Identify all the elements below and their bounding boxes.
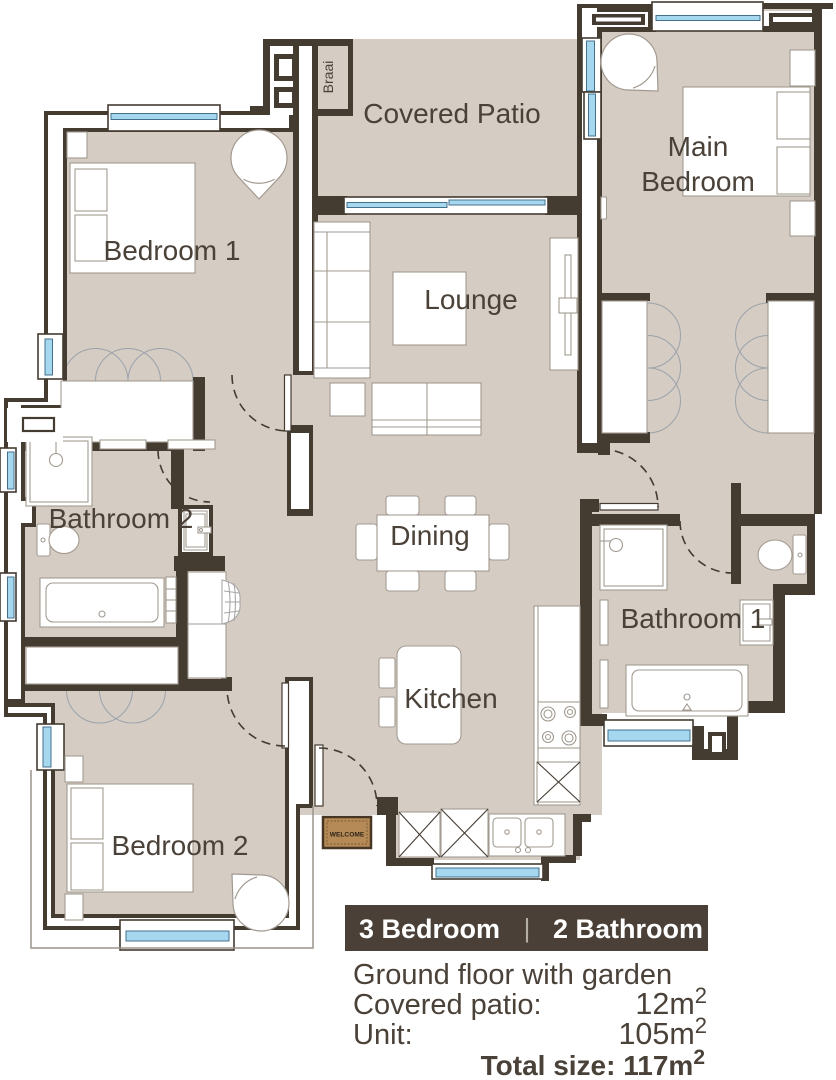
svg-text:Bedroom 2: Bedroom 2: [112, 830, 249, 861]
svg-text:Lounge: Lounge: [424, 284, 517, 315]
svg-text:3 Bedroom: 3 Bedroom: [359, 914, 500, 944]
svg-text:Unit:: Unit:: [353, 1019, 413, 1051]
svg-text:Bedroom: Bedroom: [641, 166, 755, 197]
svg-text:Covered patio:: Covered patio:: [353, 989, 542, 1021]
svg-text:Braai: Braai: [320, 61, 336, 94]
svg-text:2 Bathroom: 2 Bathroom: [553, 914, 703, 944]
svg-text:Dining: Dining: [390, 520, 469, 551]
svg-text:Total size: 117m2: Total size: 117m2: [481, 1046, 705, 1080]
svg-text:Main: Main: [668, 131, 729, 162]
svg-text:Covered Patio: Covered Patio: [363, 98, 540, 129]
svg-text:|: |: [524, 913, 531, 943]
svg-text:Ground floor with garden: Ground floor with garden: [353, 959, 672, 991]
svg-text:Bathroom 1: Bathroom 1: [621, 603, 766, 634]
svg-text:Kitchen: Kitchen: [404, 683, 497, 714]
svg-text:WELCOME: WELCOME: [330, 832, 365, 839]
svg-text:Bedroom 1: Bedroom 1: [104, 235, 241, 266]
svg-text:Bathroom 2: Bathroom 2: [49, 503, 194, 534]
